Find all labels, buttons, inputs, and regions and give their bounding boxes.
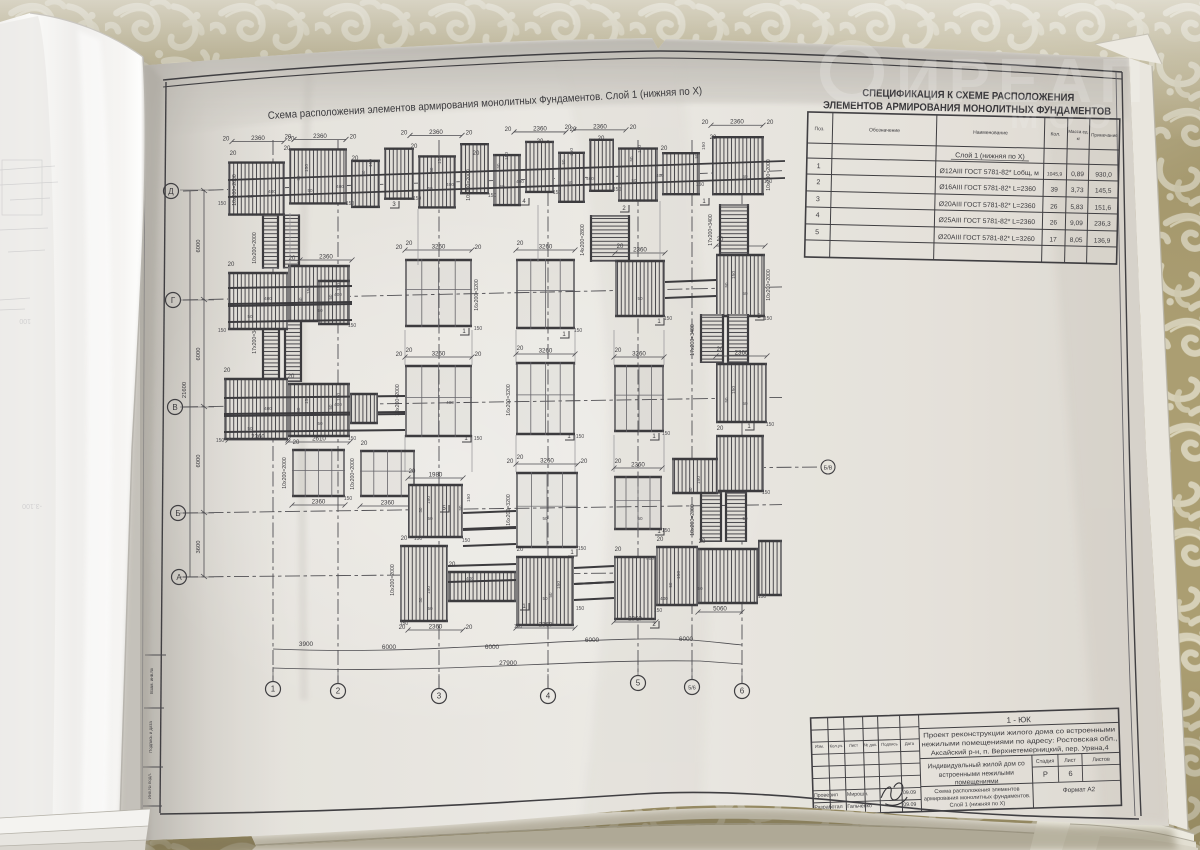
svg-text:МОО: МОО xyxy=(1010,98,1121,136)
svg-text:100: 100 xyxy=(19,317,31,324)
svg-text:-3.100: -3.100 xyxy=(22,502,42,509)
